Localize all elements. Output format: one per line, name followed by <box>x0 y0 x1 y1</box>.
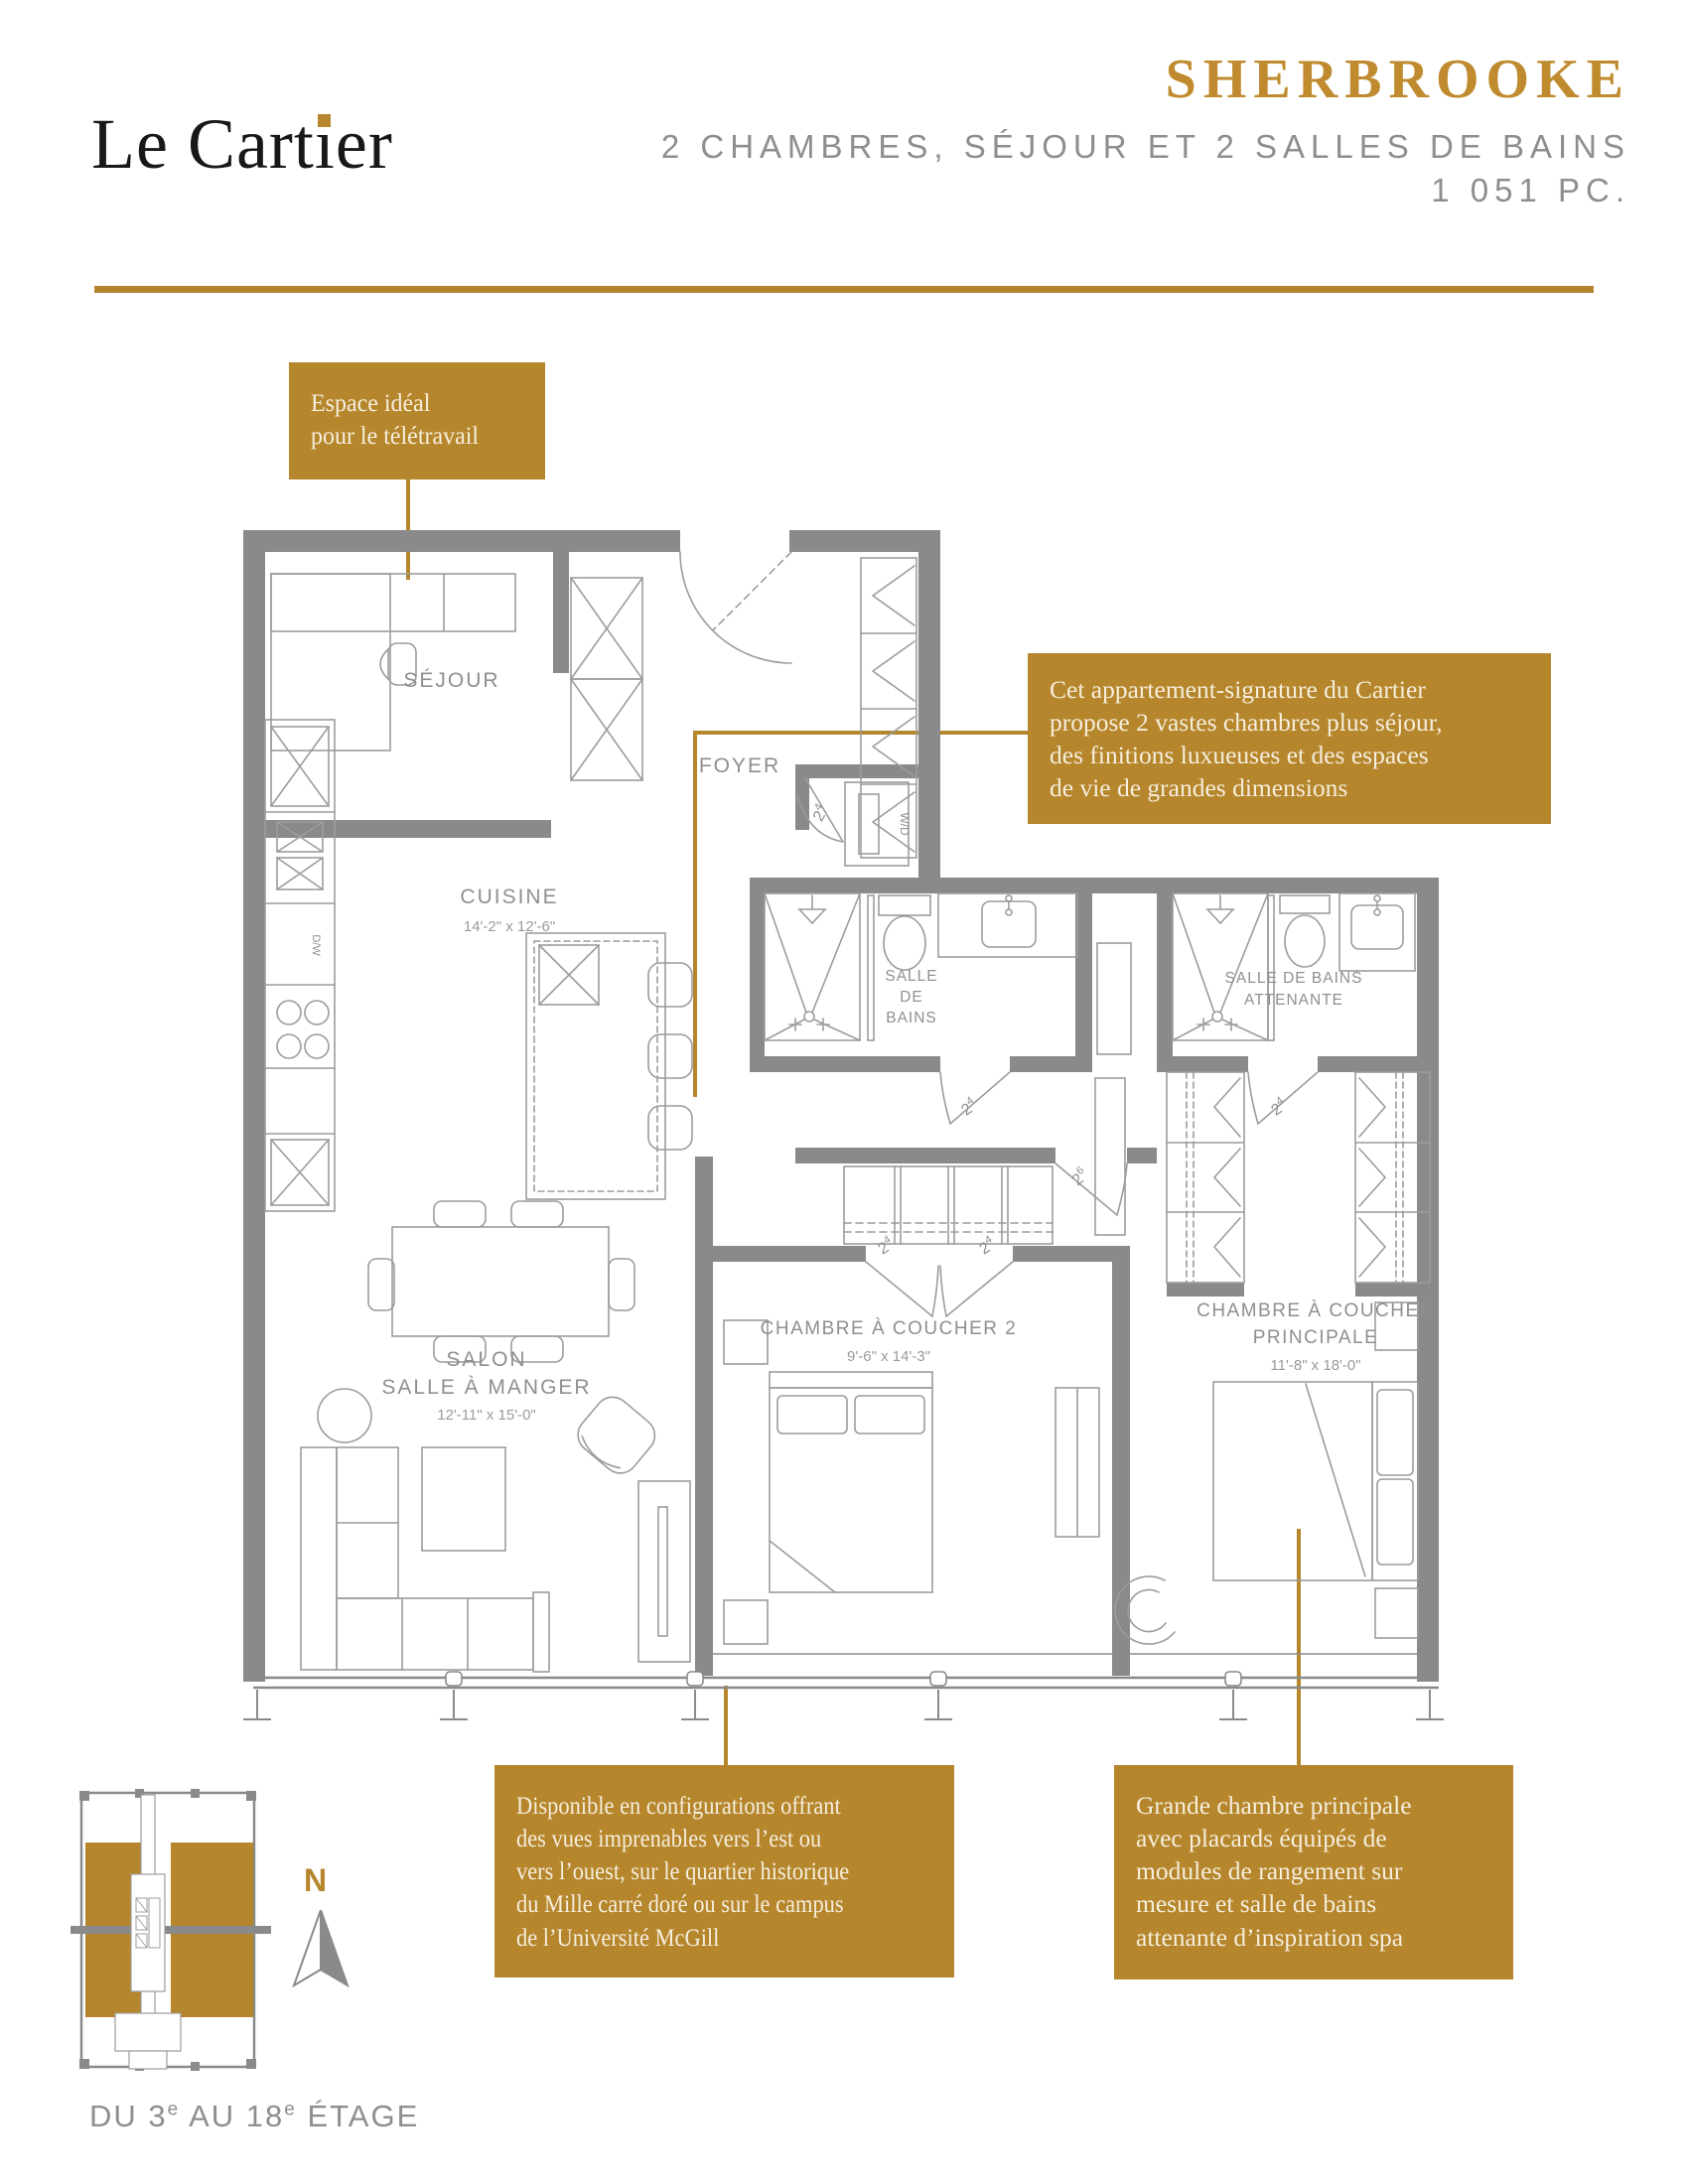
label-foyer: FOYER <box>699 754 780 777</box>
callout-line: des vues imprenables vers l’est ou <box>516 1822 883 1854</box>
master-furniture <box>1115 1302 1418 1644</box>
entry-closet <box>571 578 642 780</box>
label-salon: SALON <box>446 1348 526 1371</box>
caption-part: DU 3 <box>89 2099 168 2133</box>
callout-line: avec placards équipés de <box>1136 1822 1491 1854</box>
label-sejour: SÉJOUR <box>403 669 499 692</box>
logo-text-pre: Le Cart <box>91 104 315 184</box>
entry-door <box>680 552 791 663</box>
keyplan-center-band <box>70 1926 271 1934</box>
callout-line: mesure et salle de bains <box>1136 1887 1491 1920</box>
laundry-closet <box>797 778 909 866</box>
north-arrow-icon <box>292 1910 350 1987</box>
caption-part: AU 18 <box>180 2099 284 2133</box>
door-label: 24 <box>874 1233 897 1258</box>
logo-text-post: er <box>336 104 393 184</box>
callout-line: attenante d’inspiration spa <box>1136 1921 1491 1954</box>
callout-line: vers l’ouest, sur le quartier historique <box>516 1854 883 1887</box>
logo-gold-dot-i: ı <box>315 104 336 184</box>
unit-features: 2 CHAMBRES, SÉJOUR ET 2 SALLES DE BAINS <box>661 125 1630 169</box>
unit-area: 1 051 PC. <box>661 169 1630 212</box>
bathroom-fixtures <box>765 893 1077 1124</box>
label-principale: PRINCIPALE <box>1253 1327 1379 1348</box>
bedroom2-furniture <box>724 1320 1099 1644</box>
bedroom2-double-doors <box>866 1262 1013 1316</box>
label-principale: CHAMBRE À COUCHER <box>1196 1300 1435 1321</box>
floor-plan: SÉJOUR FOYER CUISINE 14'-2" x 12'-6" SAL… <box>243 516 1450 1722</box>
label-chambre2-dims: 9'-6" x 14'-3" <box>847 1348 930 1365</box>
callout-chambre-principale: Grande chambre principale avec placards … <box>1114 1765 1513 1979</box>
logo-text-i: ı <box>315 104 336 184</box>
salon-furniture <box>301 1201 690 1672</box>
label-ensuite: ATTENANTE <box>1244 992 1343 1009</box>
north-label: N <box>304 1862 328 1899</box>
label-salon-dims: 12'-11" x 15'-0" <box>437 1407 536 1424</box>
label-wd: W/D <box>898 812 912 836</box>
bedroom2-closet <box>844 1166 1053 1244</box>
callout-line: Espace idéal <box>311 386 510 419</box>
caption-sup: e <box>284 2100 297 2120</box>
label-salon: SALLE À MANGER <box>381 1376 591 1399</box>
unit-name: SHERBROOKE <box>661 48 1630 111</box>
callout-line: Disponible en configurations offrant <box>516 1789 883 1822</box>
floor-range-caption: DU 3e AU 18e ÉTAGE <box>89 2099 419 2134</box>
label-cuisine: CUISINE <box>460 886 558 908</box>
unit-subtitle: 2 CHAMBRES, SÉJOUR ET 2 SALLES DE BAINS … <box>661 125 1630 211</box>
door-label: 24 <box>975 1233 998 1258</box>
window-wall <box>243 1654 1444 1719</box>
sejour-desk <box>271 574 515 751</box>
label-cuisine-dims: 14'-2" x 12'-6" <box>464 918 555 935</box>
callout-vues: Disponible en configurations offrant des… <box>494 1765 954 1978</box>
brochure-page: { "header": { "logo": {"part1": "Le Cart… <box>0 0 1688 2184</box>
label-principale-dims: 11'-8" x 18'-0" <box>1270 1357 1360 1374</box>
label-ensuite: SALLE DE BAINS <box>1225 970 1363 987</box>
callout-line: du Mille carré doré ou sur le campus <box>516 1887 883 1920</box>
master-door <box>1055 1163 1127 1215</box>
label-chambre2: CHAMBRE À COUCHER 2 <box>761 1318 1018 1339</box>
label-dw: D/W <box>310 934 322 956</box>
floor-plan-furniture <box>265 552 1430 1672</box>
brand-logo: Le Cartıer <box>91 103 393 186</box>
callout-line: modules de rangement sur <box>1136 1854 1491 1887</box>
header-divider-rule <box>94 286 1594 293</box>
caption-part: ÉTAGE <box>297 2099 419 2133</box>
linen-closet <box>1095 943 1131 1235</box>
building-key-plan <box>79 1787 263 2077</box>
callout-teletravail: Espace idéal pour le télétravail <box>289 362 545 479</box>
label-bains: BAINS <box>886 1010 937 1026</box>
door-label: 26 <box>1067 1164 1091 1189</box>
callout-line: de l’Université McGill <box>516 1921 883 1954</box>
callout-line: pour le télétravail <box>311 419 510 452</box>
label-bains: DE <box>900 989 923 1006</box>
balcony-columns <box>243 1690 1444 1719</box>
walkin-closets <box>1167 1072 1430 1283</box>
door-label: 24 <box>807 801 832 824</box>
callout-line: Grande chambre principale <box>1136 1789 1491 1822</box>
ensuite-fixtures <box>1173 893 1415 1124</box>
label-bains: SALLE <box>885 968 937 985</box>
caption-sup: e <box>168 2100 181 2120</box>
header-unit-info: SHERBROOKE 2 CHAMBRES, SÉJOUR ET 2 SALLE… <box>661 48 1630 211</box>
kitchen-fixtures <box>265 720 692 1211</box>
